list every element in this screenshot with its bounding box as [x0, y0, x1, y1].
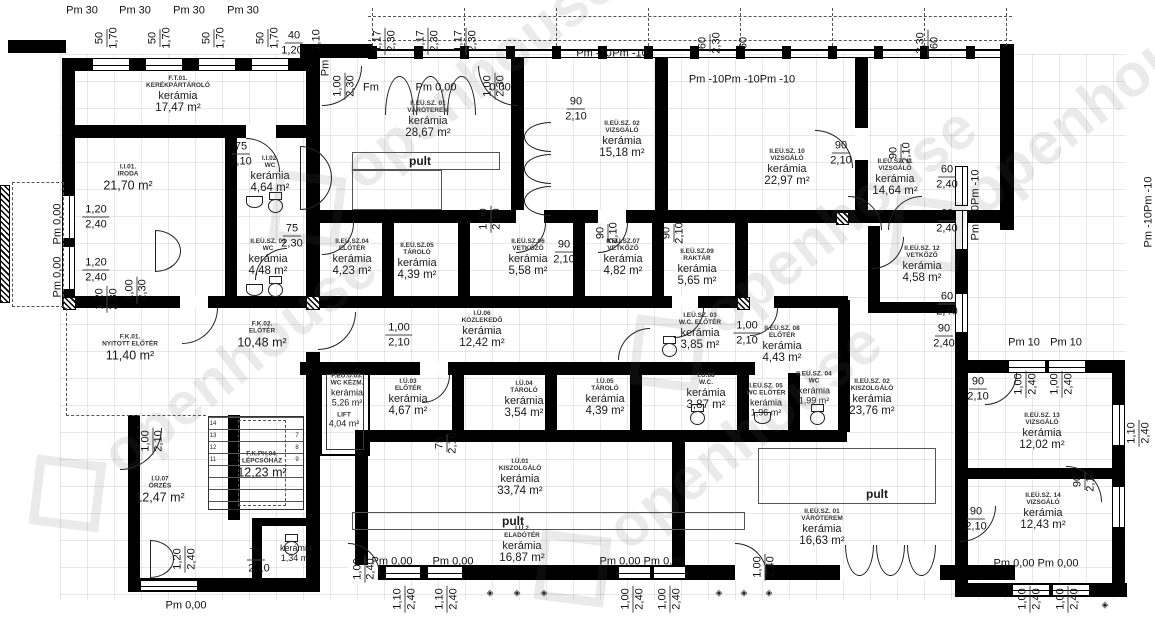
dimension-label: Pm 0,00 [994, 559, 1035, 570]
dimension-label: 40 [285, 31, 303, 44]
dimension-label: 2,10 [736, 336, 757, 347]
room-label: I.Ü.2ELADÓTÉRkerámia16,87 m² [499, 525, 544, 565]
dimension-label: 2,30 [138, 279, 149, 300]
room-label: I.Ü.06KÖZLEKEDŐkerámia12,42 m² [459, 310, 504, 350]
dimension-label: 1,00 [1056, 585, 1069, 612]
wall [955, 360, 968, 590]
dimension-label: 2,10 [675, 222, 686, 243]
dimension-label: 1,10 [435, 585, 448, 612]
wall [452, 373, 464, 432]
dimension-label: 1,70 [109, 27, 120, 48]
door-opening [180, 296, 208, 308]
survey-marker-icon: ◈ [741, 588, 748, 599]
room-label: II.EÜ.SZ.06VETKŐZŐkerámia5,58 m² [508, 238, 547, 278]
dimension-label: 1,10 [393, 585, 406, 612]
dimension-label: 2,30 [496, 75, 507, 96]
door-opening [598, 210, 626, 223]
room-label: F.K.01.NYITOTT ELŐTÉR11,40 m² [102, 334, 158, 363]
sink-icon [246, 196, 263, 208]
wall [1000, 44, 1014, 230]
window-symbol [198, 58, 236, 71]
dimension-label: 1,00 [1050, 370, 1063, 397]
dimension-label: Pm 0,00 [416, 83, 457, 94]
dimension-label: Pm 0,00 [53, 257, 64, 298]
dashed-line [66, 415, 206, 417]
dimension-label: 1,20 [82, 205, 109, 218]
room-label: II.EÜ.SZ.09RAKTÁRkerámia5,65 m² [677, 248, 716, 288]
window-symbol [145, 58, 183, 71]
dimension-label: 2,10 [967, 392, 988, 403]
stair-number: 12 [210, 445, 217, 451]
counter-pult [352, 170, 442, 210]
dimension-label: 90 [832, 141, 850, 154]
dimension-label: 60 [698, 34, 711, 52]
hatch-mark [737, 297, 750, 310]
window-symbol [1112, 404, 1125, 446]
dimension-label: 2,40 [407, 588, 418, 609]
dimension-label: 1,17 [454, 27, 467, 54]
toilet-icon [268, 276, 283, 297]
dashed-tick [832, 8, 834, 46]
dimension-label: 2,30 [109, 288, 120, 309]
dimension-label: 2,40 [936, 224, 957, 235]
wall [838, 300, 850, 432]
toilet-icon [662, 336, 677, 357]
dimension-label: Pm 0,00 [433, 557, 474, 568]
dimension-label: 2,30 [430, 30, 441, 51]
dimension-label: Pm [321, 60, 332, 77]
dimension-label: Pm 0,00 [53, 204, 64, 245]
dimension-label: Pm 30 [227, 6, 259, 17]
dimension-label: 75 [232, 142, 250, 155]
mullion-post [874, 46, 883, 59]
mullion-post [552, 46, 561, 59]
dimension-label: 50 [148, 29, 161, 47]
wall [458, 223, 470, 296]
dimension-label: 60 [938, 292, 956, 305]
dimension-label: 2,10 [448, 432, 459, 453]
survey-marker-icon: ◈ [716, 588, 723, 599]
hatch-mark [306, 296, 320, 310]
wall [545, 373, 557, 432]
dimension-label: 1,00 [1018, 585, 1031, 612]
room-label: I.I.01.IRODA21,70 m² [103, 164, 152, 193]
dimension-label: 90 [969, 377, 987, 390]
dimension-label: Pm 0,00 [644, 557, 685, 568]
mullion-post [828, 46, 837, 59]
dimension-label: 2,10 [248, 564, 269, 575]
room-label: LIFT4,04 m² [329, 411, 360, 428]
stair-number: 9 [295, 457, 298, 463]
room-label: kerámia1,34 m² [280, 543, 312, 563]
dimension-label: 60 [930, 37, 941, 49]
stair-number: 11 [210, 457, 216, 463]
room-label: II.EÜ.SZ. 13VIZSGÁLÓkerámia12,02 m² [1019, 412, 1064, 452]
door-opening [748, 296, 774, 308]
room-label: I.EÜ.SZ. 03W.C. ELŐTÉRkerámia3,85 m² [679, 312, 721, 352]
mullion-post [966, 46, 975, 59]
dimension-label: 2,10 [388, 338, 409, 349]
dimension-label: 2,10 [830, 156, 851, 167]
wall [735, 223, 748, 308]
dashed-tick [1006, 8, 1008, 46]
dimension-label: 2,40 [936, 180, 957, 191]
dimension-label: 2,10 [230, 157, 251, 168]
dimension-label: 2,40 [933, 339, 954, 350]
dimension-label: 2,40 [85, 273, 106, 284]
room-label: II.EÜ.SZ. 04WCkerámia1,99 m² [796, 371, 831, 406]
dimension-label: 60 [938, 165, 956, 178]
dimension-label: 1,70 [270, 27, 281, 48]
dimension-label: 90 [935, 324, 953, 337]
wall [573, 223, 585, 296]
window-symbol [653, 566, 686, 579]
dimension-label: 2,30 [916, 29, 929, 56]
dimension-label: 2,30 [346, 75, 357, 96]
dimension-label: 1,70 [216, 27, 227, 48]
dimension-label: 1,17 [373, 27, 386, 54]
dimension-label: 1,10 [312, 29, 323, 50]
survey-marker-icon: ◈ [487, 588, 494, 599]
dimension-label: 2,30 [712, 32, 723, 53]
room-label: II.EÜ.SZ. 02VIZSGÁLÓkerámia15,18 m² [599, 120, 644, 160]
wall [655, 58, 668, 210]
dimension-label: 90 [555, 240, 573, 253]
survey-marker-icon: ◈ [514, 588, 521, 599]
dimension-label: Pm 0,00 [1038, 559, 1079, 570]
window-symbol [251, 58, 289, 71]
sink-icon [246, 284, 263, 296]
window-symbol [427, 566, 463, 579]
counter-pult [758, 448, 936, 504]
dimension-label: 50 [95, 29, 108, 47]
dimension-label: 90 [567, 97, 585, 110]
dimension-label: 2,10 [565, 112, 586, 123]
room-label: II.EÜ.SZ. 14VIZSGÁLÓkerámia12,43 m² [1020, 492, 1065, 532]
dimension-label: 60 [739, 37, 750, 49]
stair-number: 7 [295, 433, 298, 439]
wall [1112, 360, 1125, 597]
room-label: F.T.01.KERÉKPÁRTÁROLÓkerámia17,47 m² [146, 75, 210, 115]
survey-marker-icon: ◈ [1102, 600, 1109, 611]
dimension-label: 2,40 [1064, 373, 1075, 394]
dimension-label: 50 [202, 29, 215, 47]
room-label: I.Ü.04TÁROLÓkerámia3,54 m² [504, 380, 543, 420]
dimension-label: Pm 30 [119, 6, 151, 17]
dimension-label: 2,10 [609, 222, 620, 243]
room-label: F.K.02.ELŐTÉR10,48 m² [237, 321, 286, 350]
mullion-post [782, 46, 791, 59]
stair-number: 13 [210, 433, 217, 439]
stair-number: 8 [295, 445, 298, 451]
room-label: II.EÜ.SZ. 01VÁRÓTEREMkerámia28,67 m² [405, 100, 450, 140]
dimension-label: 1,10 [1127, 419, 1140, 446]
dashed-tick [556, 8, 558, 46]
dimension-label: Pm 10 [1008, 338, 1040, 349]
dimension-label: 1,00 [385, 323, 412, 336]
dimension-label: 2,10 [965, 522, 986, 533]
dimension-label: Pm 30 [66, 6, 98, 17]
dimension-label: 2,10 [492, 208, 503, 229]
dimension-label: 2,10 [902, 142, 913, 163]
room-label: II.EÜ.SZ.07VETKŐZŐkerámia4,82 m² [603, 238, 642, 278]
dimension-label: Pm -10 [612, 49, 647, 60]
dimension-label: 75 [247, 548, 265, 561]
dimension-label: 1,00 [621, 585, 634, 612]
room-label: I.Ü.07ŐRZÉS12,47 m² [135, 476, 184, 505]
wall [8, 40, 66, 53]
dimension-label: 2,30 [387, 30, 398, 51]
door-opening [246, 125, 276, 138]
dimension-label: 1,00 [1014, 370, 1027, 397]
dimension-label: 1,20 [281, 46, 302, 57]
dashed-line [66, 308, 68, 416]
dimension-label: 2,10 [553, 255, 574, 266]
room-label: II.EÜ.SZ.04ELŐTÉRkerámia4,23 m² [332, 238, 371, 278]
room-label: I.Ü.08W.C.kerámia3,87 m² [686, 372, 725, 412]
window-symbol [385, 566, 421, 579]
survey-marker-icon: ◈ [766, 588, 773, 599]
room-label: F.K.PH.04.LÉPCSŐHÁZ12,23 m² [237, 451, 286, 480]
room-label: II.EÜ.SZ. 12VETKŐZŐkerámia4,58 m² [902, 245, 941, 285]
wall [382, 223, 394, 296]
door-opening [420, 362, 448, 375]
toilet-icon [810, 404, 825, 425]
dimension-label: 2,40 [1070, 588, 1081, 609]
room-label: I.Ü.01KISZOLGÁLÓkerámia33,74 m² [497, 458, 542, 498]
dimension-label: 2,40 [766, 556, 777, 577]
room-label: II.EÜ.SZ. 02KISZOLGÁLÓkerámia23,76 m² [849, 378, 894, 418]
dimension-label: Pm 0,00 [372, 557, 413, 568]
dimension-label: 2,40 [85, 220, 106, 231]
floor-plan: openhouse openhouse openhouse openhouse … [0, 0, 1155, 627]
dimension-label: Pm 0,00 [166, 601, 207, 612]
dimension-label: 2,10 [154, 430, 165, 451]
dimension-label: 2,40 [366, 558, 377, 579]
mullion-post [506, 46, 515, 59]
dimension-label: 1,00 [733, 321, 760, 334]
window-symbol [1112, 486, 1125, 528]
dimension-label: 2,40 [187, 548, 198, 569]
dimension-label: Pm -10Pm -10 [1144, 177, 1155, 248]
dimension-label: 2,40 [672, 588, 683, 609]
room-label: II.EÜ.SZ. 10VIZSGÁLÓkerámia22,97 m² [764, 148, 809, 188]
dimension-label: Pm 0,00 [600, 557, 641, 568]
dimension-label: 2,40 [449, 588, 460, 609]
dimension-label: 60 [938, 209, 956, 222]
dimension-label: Pm 10 [1050, 338, 1082, 349]
dimension-label: Pm -10 [576, 49, 611, 60]
dimension-label: 1,20 [173, 545, 186, 572]
hatch-strip [0, 185, 10, 303]
door-opening [672, 296, 698, 308]
room-label: II.EÜ.SZ. 08ELŐTÉRkerámia4,43 m² [762, 325, 801, 365]
dimension-label: 75 [283, 224, 301, 237]
dimension-label: 1,20 [82, 258, 109, 271]
room-label: II.EÜ.SZ. 01VÁRÓTEREMkerámia16,63 m² [799, 508, 844, 548]
door-opening [855, 128, 868, 160]
stair-number: 14 [210, 421, 217, 427]
room-label: II.EÜ.SZ. 11VIZSGÁLÓkerámia14,64 m² [872, 158, 917, 198]
dimension-label: 90 [967, 507, 985, 520]
dimension-label: 2,30 [468, 30, 479, 51]
dimension-label: 1,00 [658, 585, 671, 612]
survey-marker-icon: ◈ [541, 588, 548, 599]
dimension-label: Fm [363, 83, 379, 94]
dimension-label: 2,40 [936, 307, 957, 318]
room-label: I.EÜ.SZ. 05WC ELŐTÉRkerámia1,96 m² [747, 383, 786, 418]
room-label: I.Ü.05TÁROLÓkerámia4,39 m² [585, 378, 624, 418]
dimension-label: 50 [256, 29, 269, 47]
room-label: I.I.02.WCkerámia4,64 m² [250, 155, 289, 195]
wall [368, 430, 668, 442]
dashed-tick [648, 8, 650, 46]
window-symbol [92, 58, 130, 71]
room-label: F.EÜ.U.03.WC KÉZM.kerámia5,26 m² [331, 373, 364, 408]
counter-pult [352, 512, 745, 530]
dimension-label: 2,30 [281, 239, 302, 250]
dimension-label: 2,40 [1032, 588, 1043, 609]
hatch-mark [63, 297, 76, 310]
counter-label: pult [866, 487, 888, 501]
counter-label: pult [409, 154, 431, 168]
window-symbol [618, 566, 651, 579]
toilet-icon [268, 192, 283, 213]
room-label: I.Ü.03ELŐTÉRkerámia4,67 m² [388, 378, 427, 418]
room-label: II.EÜ.SZ.05TÁROLÓkerámia4,39 m² [397, 242, 436, 282]
dimension-label: 1,17 [416, 27, 429, 54]
dimension-label: 2,40 [1028, 373, 1039, 394]
dimension-label: 2,10 [1086, 470, 1097, 491]
dimension-label: Pm -10Pm -10 [971, 170, 982, 241]
dimension-label: Pm -10Pm -10Pm -10 [689, 75, 795, 86]
dimension-label: 1,20 [95, 285, 108, 312]
dimension-label: 2,40 [635, 588, 646, 609]
dimension-label: Pm 30 [173, 6, 205, 17]
dimension-label: 1,70 [162, 27, 173, 48]
dimension-label: 2,40 [1141, 422, 1152, 443]
window-symbol [140, 580, 198, 591]
